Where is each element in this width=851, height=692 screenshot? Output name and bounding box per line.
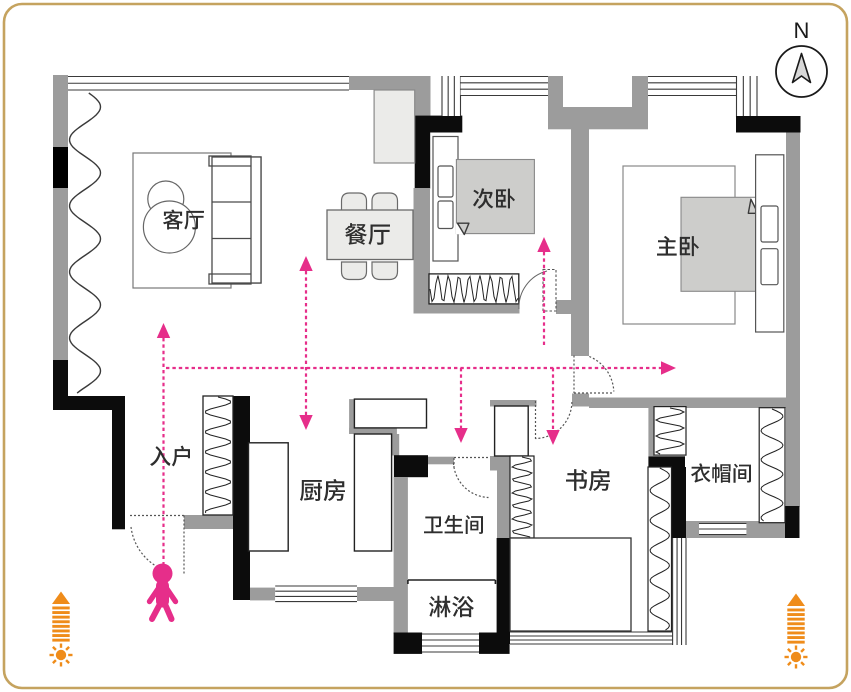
svg-text:N: N (794, 18, 810, 43)
